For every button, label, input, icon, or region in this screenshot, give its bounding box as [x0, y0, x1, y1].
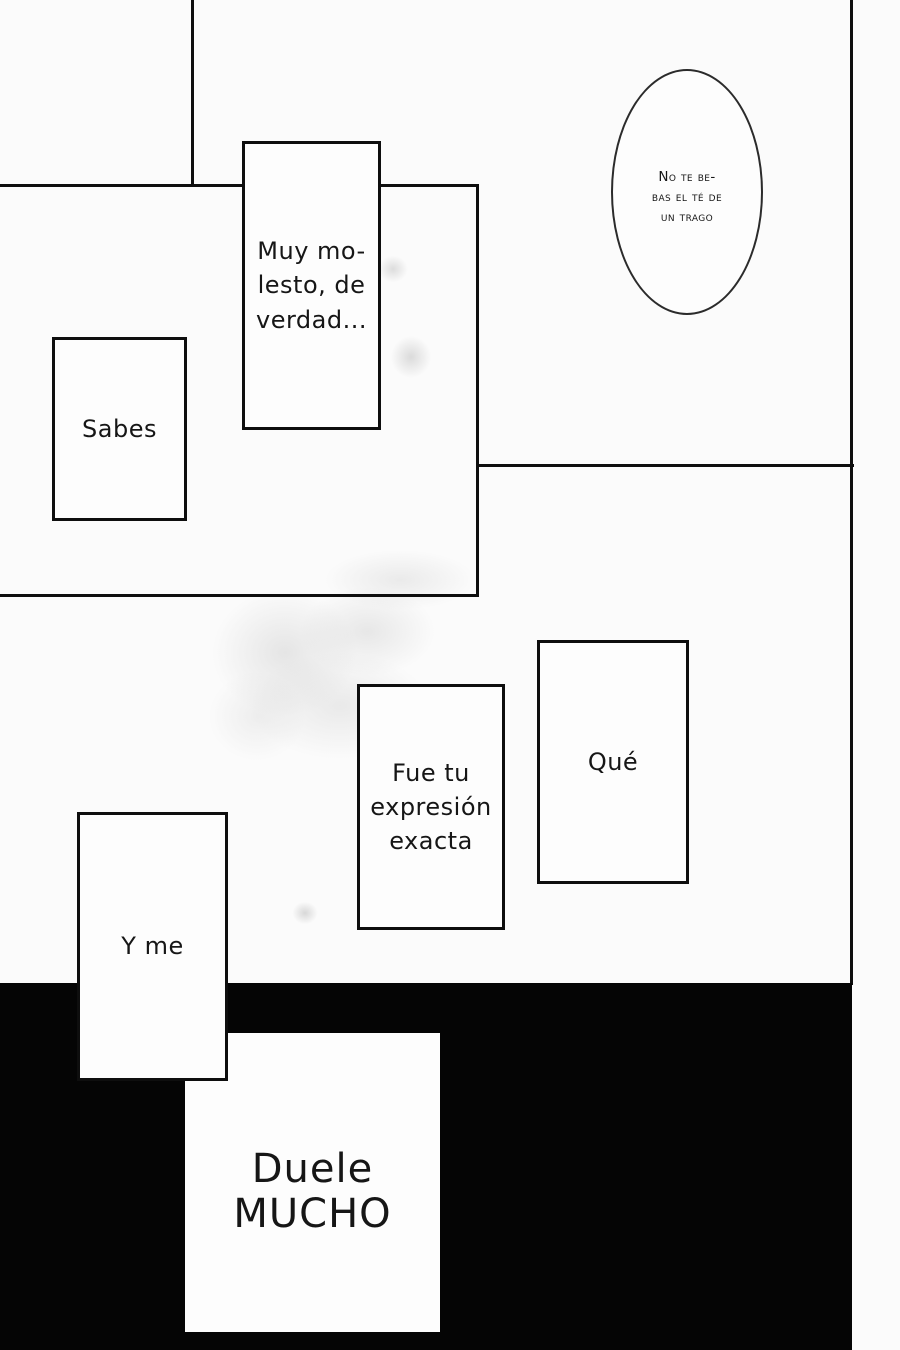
- caption-line: lesto, de: [258, 268, 366, 302]
- panel-border-horizontal-lower-left: [0, 594, 479, 597]
- caption-box-fue-tu-expresion: Fue tu expresión exacta: [357, 684, 505, 930]
- manga-page: { "page": { "background_color": "#fbfbfb…: [0, 0, 900, 1350]
- caption-box-sabes: Sabes: [52, 337, 187, 521]
- paper-smudge: [287, 897, 323, 929]
- paper-smudge: [383, 328, 439, 386]
- caption-line: Y me: [121, 929, 183, 963]
- caption-line: Fue tu: [392, 756, 470, 790]
- caption-box-que: Qué: [537, 640, 689, 884]
- caption-line: Muy mo-: [257, 234, 365, 268]
- speech-bubble-tea: No te be- bas el té de un trago: [611, 69, 763, 315]
- caption-line: exacta: [389, 824, 473, 858]
- panel-border-horizontal-upper: [0, 184, 479, 187]
- caption-line: expresión: [370, 790, 491, 824]
- caption-line: MUCHO: [233, 1192, 391, 1237]
- panel-border-vertical-top-left: [191, 0, 194, 187]
- speech-line: bas el té de: [652, 187, 722, 207]
- panel-border-vertical-right: [850, 0, 853, 985]
- speech-line: un trago: [661, 207, 713, 227]
- caption-box-y-me: Y me: [77, 812, 228, 1081]
- caption-box-muy-molesto: Muy mo- lesto, de verdad...: [242, 141, 381, 430]
- caption-line: Duele: [252, 1147, 373, 1192]
- caption-line: verdad...: [256, 303, 367, 337]
- caption-line: Qué: [588, 745, 638, 779]
- speech-line: No te be-: [658, 167, 715, 187]
- caption-line: Sabes: [82, 412, 157, 446]
- panel-border-horizontal-right: [476, 464, 854, 467]
- paper-smudge: [300, 540, 500, 620]
- panel-border-vertical-middle: [476, 184, 479, 597]
